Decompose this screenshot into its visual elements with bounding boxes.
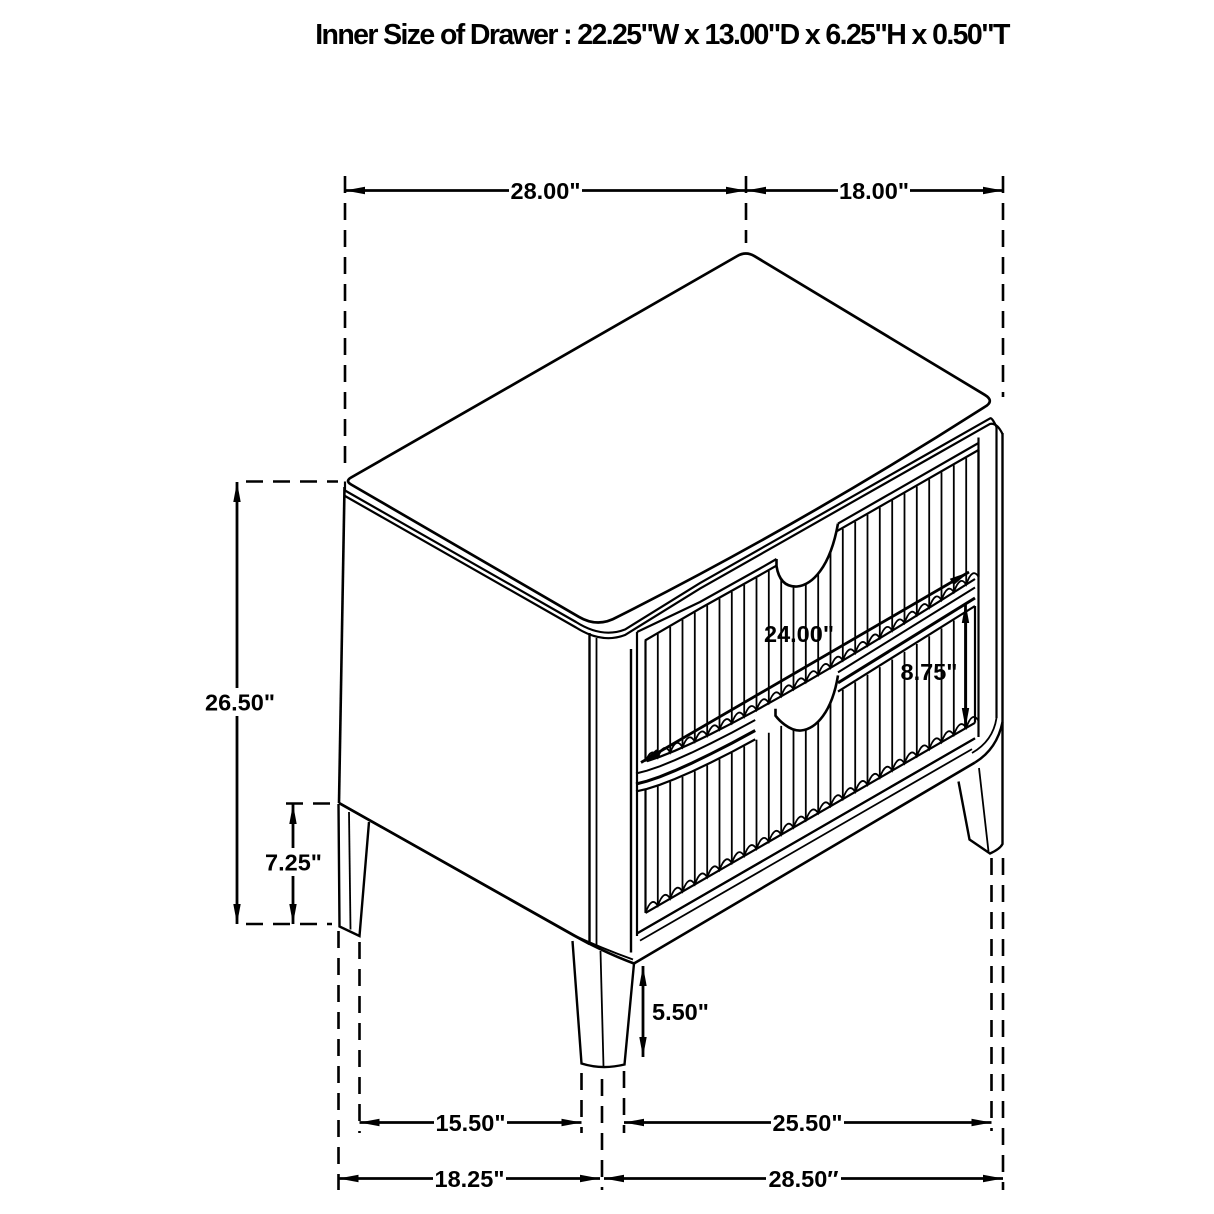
svg-text:26.50": 26.50" [205,689,275,715]
svg-text:28.00": 28.00" [511,178,581,204]
svg-text:5.50": 5.50" [652,999,709,1025]
svg-text:7.25": 7.25" [265,849,322,875]
svg-text:24.00": 24.00" [764,621,834,647]
svg-text:Inner Size of Drawer : 22.25"W: Inner Size of Drawer : 22.25"W x 13.00"D… [315,19,1011,51]
svg-text:25.50": 25.50" [773,1110,843,1136]
svg-text:15.50": 15.50" [436,1110,506,1136]
svg-text:18.25": 18.25" [435,1166,505,1192]
svg-text:28.50″: 28.50″ [768,1166,838,1192]
svg-text:18.00": 18.00" [839,178,909,204]
svg-text:8.75": 8.75" [901,659,958,685]
